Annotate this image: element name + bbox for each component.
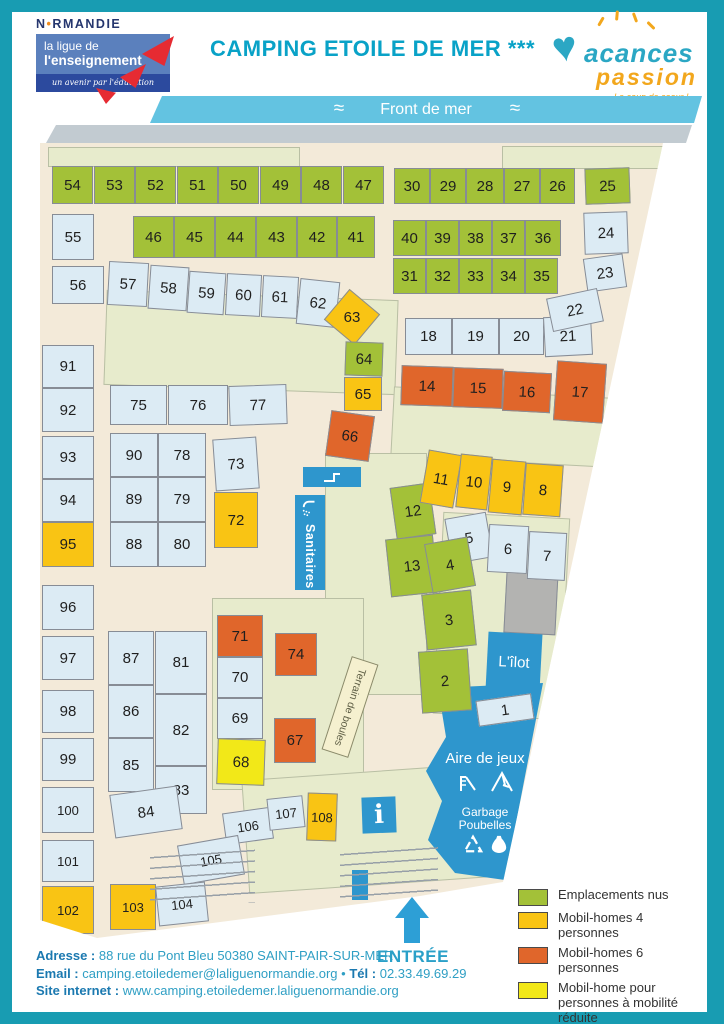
plot-number: 90 (126, 447, 143, 464)
plot-number: 37 (500, 230, 517, 247)
plot-3: 3 (421, 590, 477, 651)
plot-number: 35 (533, 268, 550, 285)
plot-91: 91 (42, 345, 94, 388)
plot-22: 22 (546, 288, 604, 332)
plot-number: 29 (440, 178, 457, 195)
plot-89: 89 (110, 477, 158, 522)
plot-number: 78 (174, 447, 191, 464)
plot-42: 42 (297, 216, 337, 258)
plot-20: 20 (499, 318, 544, 355)
plot-44: 44 (215, 216, 256, 258)
plot-number: 27 (514, 178, 531, 195)
normandie-label: N•RMANDIE (36, 17, 121, 31)
plot-94: 94 (42, 479, 94, 522)
plot-67: 67 (274, 718, 316, 763)
plot-87: 87 (108, 631, 154, 685)
plot-number: 93 (60, 449, 77, 466)
email-line: Email : camping.etoiledemer@laliguenorma… (36, 965, 466, 983)
plot-number: 73 (227, 455, 245, 473)
plot-number: 97 (60, 650, 77, 667)
plot-number: 62 (309, 294, 327, 313)
plot-number: 102 (57, 903, 79, 918)
address-value: 88 rue du Pont Bleu 50380 SAINT-PAIR-SUR… (99, 948, 394, 963)
plot-number: 51 (189, 177, 206, 194)
plot-70: 70 (217, 657, 263, 698)
plot-96: 96 (42, 585, 94, 630)
plot-number: 61 (271, 288, 289, 306)
ilot-building: L'îlot (486, 632, 543, 693)
plot-53: 53 (94, 166, 135, 204)
legend-label: Mobil-home pour personnes à mobilité réd… (558, 981, 703, 1024)
plot-number: 77 (249, 396, 266, 414)
plot-107: 107 (266, 795, 305, 831)
ligue-enseignement-logo: la ligue de l'enseignement un avenir par… (36, 34, 170, 92)
plot-93: 93 (42, 436, 94, 479)
plot-number: 38 (467, 230, 484, 247)
plot-number: 66 (341, 426, 360, 445)
plot-30: 30 (394, 168, 430, 204)
legend-label: Mobil-homes 6 personnes (558, 946, 703, 976)
address-label: Adresse : (36, 948, 95, 963)
front-de-mer-label: Front de mer (380, 101, 472, 119)
tel-label: Tél : (349, 966, 376, 981)
plot-26: 26 (540, 168, 575, 204)
plot-15: 15 (452, 367, 503, 409)
plot-108: 108 (306, 792, 338, 841)
plot-number: 68 (232, 753, 249, 771)
vacances-passion-logo: ♥ acances passion Le coup de coeur ! (550, 12, 708, 104)
plot-number: 85 (123, 757, 140, 774)
plot-36: 36 (525, 220, 561, 256)
plot-57: 57 (107, 261, 149, 307)
plot-4: 4 (424, 537, 476, 594)
plot-number: 8 (538, 481, 548, 499)
plot-60: 60 (225, 273, 262, 317)
plot-98: 98 (42, 690, 94, 733)
plot-31: 31 (393, 258, 426, 294)
plot-16: 16 (502, 371, 552, 413)
plot-38: 38 (459, 220, 492, 256)
plot-number: 32 (434, 268, 451, 285)
plot-82: 82 (155, 694, 207, 766)
plot-76: 76 (168, 385, 228, 425)
plot-number: 39 (434, 230, 451, 247)
email-value: camping.etoiledemer@laliguenormandie.org (82, 966, 337, 981)
wave-icon: ≈ (510, 98, 518, 120)
plot-8: 8 (522, 463, 564, 518)
plot-number: 65 (355, 386, 372, 403)
plot-47: 47 (343, 166, 384, 204)
plot-number: 52 (147, 177, 164, 194)
plot-51: 51 (177, 166, 218, 204)
plot-number: 16 (518, 383, 536, 401)
plot-66: 66 (325, 410, 375, 462)
promenade-strip (46, 125, 692, 143)
plot-number: 84 (137, 802, 156, 821)
plot-86: 86 (108, 685, 154, 738)
sanitaires-building: Sanitaires (295, 495, 325, 590)
plot-33: 33 (459, 258, 492, 294)
plot-number: 25 (599, 177, 616, 195)
plot-number: 46 (145, 229, 162, 246)
plot-number: 75 (130, 397, 147, 414)
plot-37: 37 (492, 220, 525, 256)
plot-number: 94 (60, 492, 77, 509)
plot-number: 79 (174, 491, 191, 508)
plot-64: 64 (344, 341, 383, 376)
plot-101: 101 (42, 840, 94, 882)
plot-10: 10 (455, 453, 492, 510)
legend-swatch (518, 889, 548, 906)
plot-41: 41 (337, 216, 375, 258)
plot-number: 18 (420, 328, 437, 345)
plot-number: 95 (60, 536, 77, 553)
plot-number: 100 (57, 803, 79, 818)
sink-unit (303, 467, 361, 487)
legend-item: Mobil-homes 4 personnes (518, 911, 703, 941)
plot-number: 36 (535, 230, 552, 247)
plot-number: 59 (198, 284, 216, 302)
site-label: Site internet : (36, 983, 119, 998)
plot-number: 53 (106, 177, 123, 194)
plot-number: 54 (64, 177, 81, 194)
plot-number: 58 (160, 279, 178, 297)
plot-14: 14 (400, 365, 453, 407)
plot-28: 28 (466, 168, 504, 204)
plot-80: 80 (158, 522, 206, 567)
plot-number: 22 (565, 300, 585, 320)
info-point: i (361, 796, 396, 833)
heart-v-icon: ♥ (549, 24, 580, 69)
legend-label: Emplacements nus (558, 888, 669, 903)
plot-number: 4 (444, 556, 455, 574)
plot-number: 108 (311, 809, 333, 825)
plot-97: 97 (42, 636, 94, 680)
plot-number: 42 (309, 229, 326, 246)
plot-number: 106 (236, 817, 260, 835)
plot-number: 81 (173, 654, 190, 671)
email-label: Email : (36, 966, 79, 981)
plot-number: 89 (126, 491, 143, 508)
plot-77: 77 (228, 384, 287, 426)
plot-number: 45 (186, 229, 203, 246)
plot-40: 40 (393, 220, 426, 256)
plot-52: 52 (135, 166, 176, 204)
plot-68: 68 (216, 738, 266, 786)
plot-number: 17 (571, 383, 589, 401)
plot-61: 61 (261, 275, 299, 319)
plot-9: 9 (488, 459, 527, 516)
legend-swatch (518, 912, 548, 929)
plot-73: 73 (212, 437, 260, 492)
plot-23: 23 (583, 253, 627, 292)
plot-number: 107 (274, 804, 297, 821)
ligue-logo-tagline: un avenir par l'éducation populaire (36, 74, 170, 92)
plot-88: 88 (110, 522, 158, 567)
plot-90: 90 (110, 433, 158, 477)
plot-number: 63 (344, 309, 361, 326)
plot-number: 98 (60, 703, 77, 720)
plot-number: 91 (60, 358, 77, 375)
slide-icon (454, 769, 482, 798)
separator-dot: • (341, 966, 346, 981)
garbage-label: Garbage (462, 805, 509, 819)
plot-number: 41 (348, 229, 365, 246)
plot-number: 3 (444, 611, 454, 629)
plot-7: 7 (527, 531, 567, 581)
plot-number: 47 (355, 177, 372, 194)
plot-72: 72 (214, 492, 258, 548)
plot-number: 57 (119, 275, 137, 293)
plot-number: 80 (174, 536, 191, 553)
plot-number: 11 (432, 469, 450, 488)
footer-contact: Adresse : 88 rue du Pont Bleu 50380 SAIN… (36, 947, 466, 1000)
plot-number: 28 (477, 178, 494, 195)
brand-word-passion: passion (596, 64, 697, 91)
plot-58: 58 (148, 265, 190, 312)
plot-74: 74 (275, 633, 317, 676)
tel-value: 02.33.49.69.29 (380, 966, 467, 981)
plot-number: 76 (190, 397, 207, 414)
legend-swatch (518, 982, 548, 999)
plot-number: 74 (288, 646, 305, 663)
plot-43: 43 (256, 216, 297, 258)
grass-zone (48, 147, 300, 167)
plot-number: 12 (404, 501, 423, 520)
plot-number: 69 (232, 710, 249, 727)
plot-number: 15 (469, 379, 486, 397)
plot-number: 67 (287, 732, 304, 749)
aire-de-jeux-label: Aire de jeux (445, 750, 524, 767)
plot-number: 86 (123, 703, 140, 720)
plot-50: 50 (218, 166, 259, 204)
swing-icon (488, 769, 516, 798)
plot-number: 7 (542, 547, 551, 564)
plot-39: 39 (426, 220, 459, 256)
plot-number: 72 (228, 512, 245, 529)
site-value: www.camping.etoiledemer.laliguenormandie… (123, 983, 399, 998)
plot-46: 46 (133, 216, 174, 258)
plot-number: 10 (465, 473, 483, 492)
plot-number: 82 (173, 722, 190, 739)
info-icon: i (374, 800, 385, 830)
ilot-label: L'îlot (498, 653, 530, 672)
plot-71: 71 (217, 615, 263, 657)
plot-35: 35 (525, 258, 558, 294)
plot-79: 79 (158, 477, 206, 522)
plot-number: 56 (70, 277, 87, 294)
plot-number: 34 (500, 268, 517, 285)
poubelles-label: Poubelles (459, 818, 512, 832)
plot-6: 6 (487, 524, 529, 574)
plot-number: 2 (440, 672, 450, 690)
plot-49: 49 (260, 166, 301, 204)
plot-number: 99 (60, 751, 77, 768)
plot-number: 43 (268, 229, 285, 246)
plot-29: 29 (430, 168, 466, 204)
plot-number: 9 (502, 478, 512, 496)
sun-ray-icon (646, 21, 655, 30)
plot-number: 60 (235, 286, 253, 304)
plot-65: 65 (344, 377, 382, 411)
shower-icon (301, 499, 319, 522)
legend-swatch (518, 947, 548, 964)
plot-number: 70 (232, 669, 249, 686)
plot-24: 24 (583, 211, 628, 255)
plot-56: 56 (52, 266, 104, 304)
trash-bag-icon (490, 834, 508, 859)
plot-81: 81 (155, 631, 207, 694)
plot-34: 34 (492, 258, 525, 294)
plot-number: 23 (596, 263, 615, 282)
plot-number: 13 (403, 557, 421, 576)
plot-19: 19 (452, 318, 499, 355)
plot-45: 45 (174, 216, 215, 258)
sun-ray-icon (632, 12, 638, 22)
plot-number: 20 (513, 328, 530, 345)
plot-54: 54 (52, 166, 93, 204)
wave-icon: ≈ (334, 98, 342, 120)
plot-number: 44 (227, 229, 244, 246)
page-title: CAMPING ETOILE DE MER *** (175, 36, 570, 62)
recycle-icon (462, 834, 484, 859)
entree-arrow-icon (395, 897, 429, 918)
plot-number: 19 (467, 328, 484, 345)
plot-number: 40 (401, 230, 418, 247)
plot-59: 59 (187, 271, 227, 315)
address-line: Adresse : 88 rue du Pont Bleu 50380 SAIN… (36, 947, 466, 965)
plot-number: 31 (401, 268, 418, 285)
plot-number: 50 (230, 177, 247, 194)
plot-27: 27 (504, 168, 540, 204)
plot-number: 87 (123, 650, 140, 667)
plot-55: 55 (52, 214, 94, 260)
plot-32: 32 (426, 258, 459, 294)
plot-number: 101 (57, 854, 79, 869)
plot-84: 84 (109, 785, 182, 838)
plot-number: 24 (597, 224, 614, 242)
legend-item: Emplacements nus (518, 888, 703, 906)
plot-number: 71 (232, 628, 249, 645)
plot-78: 78 (158, 433, 206, 477)
plot-number: 30 (404, 178, 421, 195)
plot-number: 26 (549, 178, 566, 195)
legend-item: Mobil-home pour personnes à mobilité réd… (518, 981, 703, 1024)
parking-hatching (150, 848, 255, 903)
plot-95: 95 (42, 522, 94, 567)
plot-number: 55 (65, 229, 82, 246)
camping-map-page: N•RMANDIE la ligue de l'enseignement un … (0, 0, 724, 1024)
plot-2: 2 (418, 648, 472, 713)
site-line: Site internet : www.camping.etoiledemer.… (36, 982, 466, 1000)
plot-18: 18 (405, 318, 452, 355)
legend-item: Mobil-homes 6 personnes (518, 946, 703, 976)
sanitaires-label: Sanitaires (303, 524, 317, 589)
plot-number: 88 (126, 536, 143, 553)
plot-number: 14 (418, 377, 435, 395)
plot-number: 48 (313, 177, 330, 194)
entree-arrow-stem (404, 917, 420, 943)
parking-hatching (340, 845, 438, 900)
plot-number: 49 (272, 177, 289, 194)
plot-number: 64 (355, 350, 372, 368)
sun-ray-icon (597, 16, 605, 26)
plot-number: 6 (503, 540, 512, 557)
legend: Emplacements nusMobil-homes 4 personnesM… (518, 888, 703, 1024)
plot-number: 1 (500, 701, 511, 719)
plot-100: 100 (42, 787, 94, 833)
plot-92: 92 (42, 388, 94, 432)
plot-number: 96 (60, 599, 77, 616)
plot-number: 103 (122, 900, 144, 915)
plot-69: 69 (217, 698, 263, 739)
faucet-icon (321, 470, 343, 484)
plot-48: 48 (301, 166, 342, 204)
plot-number: 33 (467, 268, 484, 285)
plot-17: 17 (553, 360, 607, 423)
grass-zone (502, 146, 664, 169)
plot-75: 75 (110, 385, 167, 425)
plot-99: 99 (42, 738, 94, 781)
sun-ray-icon (615, 10, 619, 20)
plot-85: 85 (108, 738, 154, 792)
front-de-mer-banner: ≈ Front de mer ≈ (150, 96, 702, 123)
plot-25: 25 (584, 167, 630, 205)
legend-label: Mobil-homes 4 personnes (558, 911, 703, 941)
plot-number: 92 (60, 402, 77, 419)
